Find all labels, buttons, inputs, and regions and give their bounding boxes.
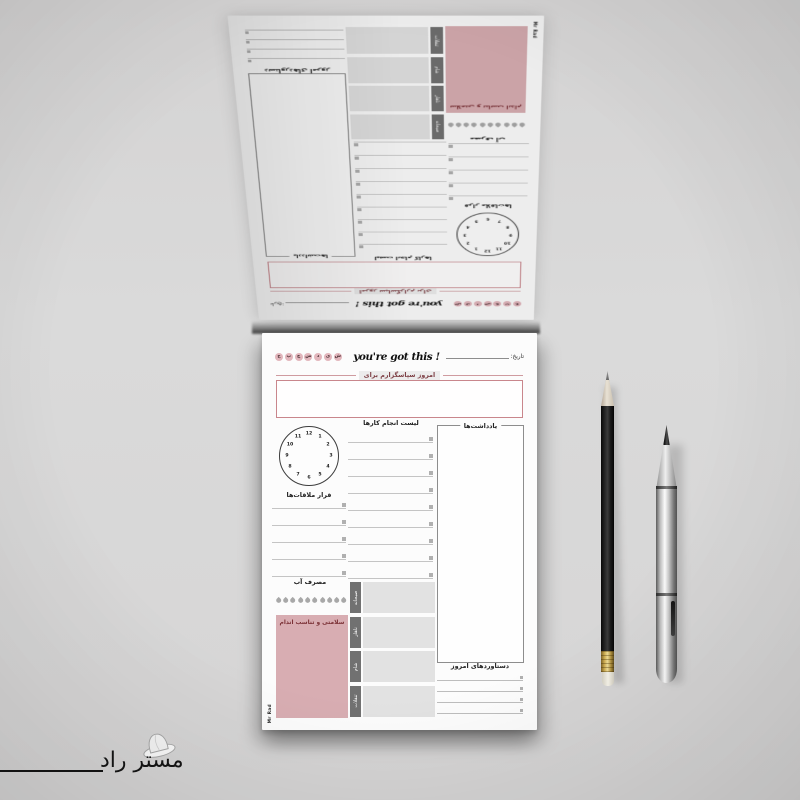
weekday-circle: س <box>304 353 312 361</box>
date-label: تاریخ: <box>270 302 284 306</box>
clock-number: 3 <box>463 233 466 237</box>
watermark-text: مستر راد <box>100 748 184 773</box>
pencil-body <box>601 406 614 651</box>
appointments-list <box>448 143 528 208</box>
water-drop-icon <box>275 597 283 605</box>
checkbox-icon <box>449 172 453 175</box>
clock-number: 12 <box>306 432 313 437</box>
appointment-row <box>272 543 346 560</box>
pen-barrel <box>656 486 677 683</box>
weekday-tracker: ج پچسدیش <box>449 301 522 306</box>
motto-text: you're got this ! <box>349 300 449 308</box>
water-heading: مصرف آب <box>444 136 531 142</box>
checkbox-icon <box>342 537 346 541</box>
todo-row <box>348 528 433 545</box>
meal-tab: صبحانه <box>350 582 361 613</box>
achievement-row <box>248 58 346 67</box>
checkbox-icon <box>429 437 433 441</box>
achievement-row <box>437 670 523 681</box>
todo-row <box>348 511 433 528</box>
water-drop-icon <box>470 121 478 127</box>
pen <box>656 425 677 683</box>
planner-page-bottom: ج پچسدیش you're got this ! تاریخ: امروز … <box>262 333 537 730</box>
checkbox-icon <box>357 196 361 199</box>
checkbox-icon <box>429 505 433 509</box>
meal-tab-label: تنقلات <box>353 694 359 707</box>
appointment-row <box>272 560 346 577</box>
todo-row <box>354 142 447 155</box>
checkbox-icon <box>358 233 362 236</box>
checkbox-icon <box>342 520 346 524</box>
weekday-circle: ی <box>324 353 332 361</box>
checkbox-icon <box>248 60 252 63</box>
fitness-label: سلامتی و تناسب اندام <box>276 620 348 626</box>
meal-tab: تنقلات <box>430 27 443 54</box>
meal-row: صبحانه <box>350 114 444 139</box>
water-drop-icon <box>454 121 462 127</box>
checkbox-icon <box>520 687 523 690</box>
achievements-heading: دستاوردهای امروز <box>437 662 523 670</box>
checkbox-icon <box>245 32 249 35</box>
appointments-list <box>272 492 346 577</box>
achievements-heading: دستاوردهای امروز <box>249 67 346 74</box>
todo-row <box>358 219 447 231</box>
water-drop-icon <box>326 597 334 605</box>
appointment-row <box>449 183 528 196</box>
meal-row: صبحانه <box>350 582 435 613</box>
pen-ring <box>656 593 677 596</box>
weekday-circle: ی <box>464 301 472 306</box>
clock-number: 10 <box>504 241 511 245</box>
date-line <box>286 302 349 303</box>
meal-tab: صبحانه <box>432 114 444 139</box>
checkbox-icon <box>448 145 452 148</box>
weekday-circle: ش <box>454 301 462 306</box>
water-drop-icon <box>340 597 348 605</box>
gratitude-rule <box>443 375 523 376</box>
clock-face: 12 1234567891011 <box>456 213 519 256</box>
checkbox-icon <box>449 185 453 188</box>
checkbox-icon <box>355 170 359 173</box>
water-drop-icon <box>462 121 470 127</box>
gratitude-rule <box>270 291 351 292</box>
checkbox-icon <box>342 571 346 575</box>
meal-box <box>363 582 436 613</box>
clock-numbers: 12 1234567891011 <box>280 427 338 485</box>
checkbox-icon <box>247 51 251 54</box>
todo-row <box>348 477 433 494</box>
appointment-row <box>272 509 346 526</box>
clock-number: 6 <box>307 476 310 481</box>
checkbox-icon <box>520 709 523 712</box>
clock-number: 2 <box>326 443 329 448</box>
todo-heading: لیست انجام کارها <box>359 255 448 261</box>
clock-number: 7 <box>296 473 299 478</box>
clock-number: 4 <box>326 465 329 470</box>
gratitude-box <box>276 380 523 418</box>
achievement-row <box>246 39 345 48</box>
checkbox-icon <box>342 554 346 558</box>
todo-row <box>348 426 433 443</box>
weekday-circle: ش <box>334 353 342 361</box>
clock-number: 10 <box>287 443 294 448</box>
todo-list <box>348 426 433 579</box>
weekday-circle: پ <box>285 353 293 361</box>
meal-tab: شام <box>350 651 361 682</box>
water-drop-icon <box>311 597 319 605</box>
meal-row: تنقلات <box>350 686 435 717</box>
meal-tab: تنقلات <box>350 686 361 717</box>
water-tracker <box>275 597 351 604</box>
checkbox-icon <box>356 183 360 186</box>
planner-page-top: ج پچسدیش you're got this ! تاریخ: امروز … <box>227 16 544 320</box>
appointment-row <box>449 196 528 209</box>
meal-tab-label: شام <box>434 67 441 74</box>
todo-row <box>348 562 433 579</box>
fitness-box: سلامتی و تناسب اندام <box>276 615 348 718</box>
brand-text: Mr Rad <box>268 704 273 723</box>
todo-row <box>356 181 447 194</box>
gratitude-heading-row: امروز سپاسگزارم برای <box>276 371 523 380</box>
checkbox-icon <box>429 539 433 543</box>
meal-box <box>363 651 436 682</box>
todo-row <box>356 194 446 207</box>
checkbox-icon <box>449 197 453 200</box>
appointment-row <box>272 526 346 543</box>
weekday-circle: د <box>314 353 322 361</box>
appointments-heading: قرار ملاقات‌ها <box>447 203 530 209</box>
water-drop-icon <box>282 597 290 605</box>
water-drop-icon <box>333 597 341 605</box>
weekday-circle: ج <box>275 353 283 361</box>
water-heading: مصرف آب <box>270 578 350 586</box>
clock-number: 11 <box>295 435 302 440</box>
weekday-circle: د <box>474 301 482 306</box>
clock-face: 12 1234567891011 <box>279 426 339 486</box>
clock-numbers: 12 1234567891011 <box>457 213 518 255</box>
clock-number: 11 <box>496 246 503 250</box>
water-drop-icon <box>510 121 518 127</box>
clock-number: 8 <box>288 465 291 470</box>
clock-number: 9 <box>285 454 288 459</box>
fitness-box: سلامتی و تناسب اندام <box>445 26 528 113</box>
meal-tab-label: صبحانه <box>353 590 359 605</box>
clock-number: 12 <box>484 249 491 253</box>
meal-row: ناهار <box>349 86 444 111</box>
checkbox-icon <box>429 573 433 577</box>
appointment-row <box>272 492 346 509</box>
checkbox-icon <box>429 556 433 560</box>
checkbox-icon <box>520 676 523 679</box>
checkbox-icon <box>429 522 433 526</box>
gratitude-rule <box>276 375 356 376</box>
meal-tab: ناهار <box>431 86 444 111</box>
weekday-circle: چ <box>295 353 303 361</box>
meal-box <box>350 114 430 139</box>
checkbox-icon <box>246 41 250 44</box>
todo-row <box>357 207 447 220</box>
water-drop-icon <box>297 597 305 605</box>
todo-row <box>355 168 447 181</box>
todo-row <box>348 460 433 477</box>
water-drop-icon <box>304 597 312 605</box>
pencil-ferrule <box>601 651 614 672</box>
motto-text: you're got this ! <box>347 351 446 363</box>
meal-tab: شام <box>431 57 444 83</box>
todo-row <box>358 232 447 244</box>
meal-tab-label: شام <box>353 662 359 671</box>
pen-ring <box>656 486 677 489</box>
gratitude-box <box>267 262 521 288</box>
clock-number: 1 <box>318 435 321 440</box>
clock-number: 2 <box>466 241 469 245</box>
todo-row <box>354 155 446 168</box>
clock-number: 6 <box>486 217 489 221</box>
pencil-eraser <box>602 672 614 686</box>
checkbox-icon <box>429 471 433 475</box>
checkbox-icon <box>357 209 361 212</box>
notes-heading: یادداشت‌ها <box>289 253 332 259</box>
gratitude-label: امروز سپاسگزارم برای <box>354 288 437 294</box>
achievements-list <box>437 670 523 714</box>
checkbox-icon <box>358 221 362 224</box>
gratitude-label: امروز سپاسگزارم برای <box>359 371 440 380</box>
checkbox-icon <box>354 144 358 147</box>
meal-box <box>347 57 429 83</box>
gratitude-heading-row: امروز سپاسگزارم برای <box>270 288 521 294</box>
meal-tab-label: تنقلات <box>433 35 440 46</box>
checkbox-icon <box>429 454 433 458</box>
checkbox-icon <box>342 503 346 507</box>
todo-row <box>348 443 433 460</box>
achievement-row <box>437 681 523 692</box>
water-tracker <box>443 122 526 127</box>
water-drop-icon <box>494 121 502 127</box>
clock-number: 9 <box>509 233 512 237</box>
todo-row <box>348 545 433 562</box>
appointment-row <box>448 143 528 156</box>
clock-number: 3 <box>329 454 332 459</box>
meal-tab-label: ناهار <box>434 95 441 103</box>
checkbox-icon <box>429 488 433 492</box>
pen-clip <box>671 601 675 636</box>
clock-number: 4 <box>466 225 469 229</box>
weekday-circle: ج <box>513 301 521 306</box>
date-field: تاریخ: <box>446 354 524 360</box>
todo-row <box>348 494 433 511</box>
brand-watermark: مستر راد <box>0 729 215 795</box>
notes-heading: یادداشت‌ها <box>460 422 501 430</box>
meal-row: ناهار <box>350 617 435 648</box>
notes-box: یادداشت‌ها <box>248 73 356 256</box>
page-header: ج پچسدیش you're got this ! تاریخ: <box>270 299 521 308</box>
meal-tab-label: صبحانه <box>435 121 442 133</box>
meal-row: شام <box>347 57 443 83</box>
clock-number: 1 <box>475 246 478 250</box>
achievement-row <box>437 692 523 703</box>
checkbox-icon <box>520 698 523 701</box>
water-drop-icon <box>518 121 526 127</box>
todo-row <box>359 244 447 256</box>
achievement-row <box>437 703 523 714</box>
date-label: تاریخ: <box>511 354 525 360</box>
pen-tip <box>663 425 670 447</box>
watermark-line <box>0 770 103 772</box>
weekday-tracker: ج پچسدیش <box>275 353 347 361</box>
checkbox-icon <box>359 246 363 249</box>
achievement-row <box>245 30 344 40</box>
brand-text: Mr Rad <box>531 22 537 39</box>
fitness-label: سلامتی و تناسب اندام <box>446 104 526 109</box>
checkbox-icon <box>449 158 453 161</box>
meal-box <box>346 27 430 54</box>
achievements-list <box>245 30 345 68</box>
weekday-circle: پ <box>503 301 511 306</box>
date-field: تاریخ: <box>270 302 349 306</box>
water-drop-icon <box>318 597 326 605</box>
todo-list <box>354 142 448 256</box>
clock-number: 5 <box>475 219 478 223</box>
meal-row: تنقلات <box>346 27 444 54</box>
gratitude-rule <box>440 291 521 292</box>
weekday-circle: س <box>484 301 492 306</box>
appointment-row <box>449 170 529 183</box>
meal-row: شام <box>350 651 435 682</box>
appointment-row <box>449 157 529 170</box>
pencil <box>601 371 614 687</box>
weekday-circle: چ <box>493 301 501 306</box>
clock-number: 7 <box>498 219 501 223</box>
meal-box <box>363 617 436 648</box>
page-header: ج پچسدیش you're got this ! تاریخ: <box>275 350 524 364</box>
meals-section: صبحانه ناهار شام تنقلات <box>346 27 445 139</box>
water-drop-icon <box>486 121 494 127</box>
meal-box <box>349 86 430 111</box>
clock-number: 5 <box>318 473 321 478</box>
water-drop-icon <box>478 121 486 127</box>
water-drop-icon <box>289 597 297 605</box>
achievement-row <box>247 49 345 58</box>
water-drop-icon <box>446 121 454 127</box>
meal-tab: ناهار <box>350 617 361 648</box>
date-line <box>446 358 509 359</box>
meal-box <box>363 686 436 717</box>
mockup-scene: ج پچسدیش you're got this ! تاریخ: امروز … <box>0 0 800 800</box>
meals-section: صبحانه ناهار شام تنقلات <box>350 582 435 717</box>
notes-box: یادداشت‌ها <box>437 425 524 663</box>
meal-tab-label: ناهار <box>353 627 359 637</box>
checkbox-icon <box>355 157 359 160</box>
clock-number: 8 <box>506 225 509 229</box>
water-drop-icon <box>502 121 510 127</box>
